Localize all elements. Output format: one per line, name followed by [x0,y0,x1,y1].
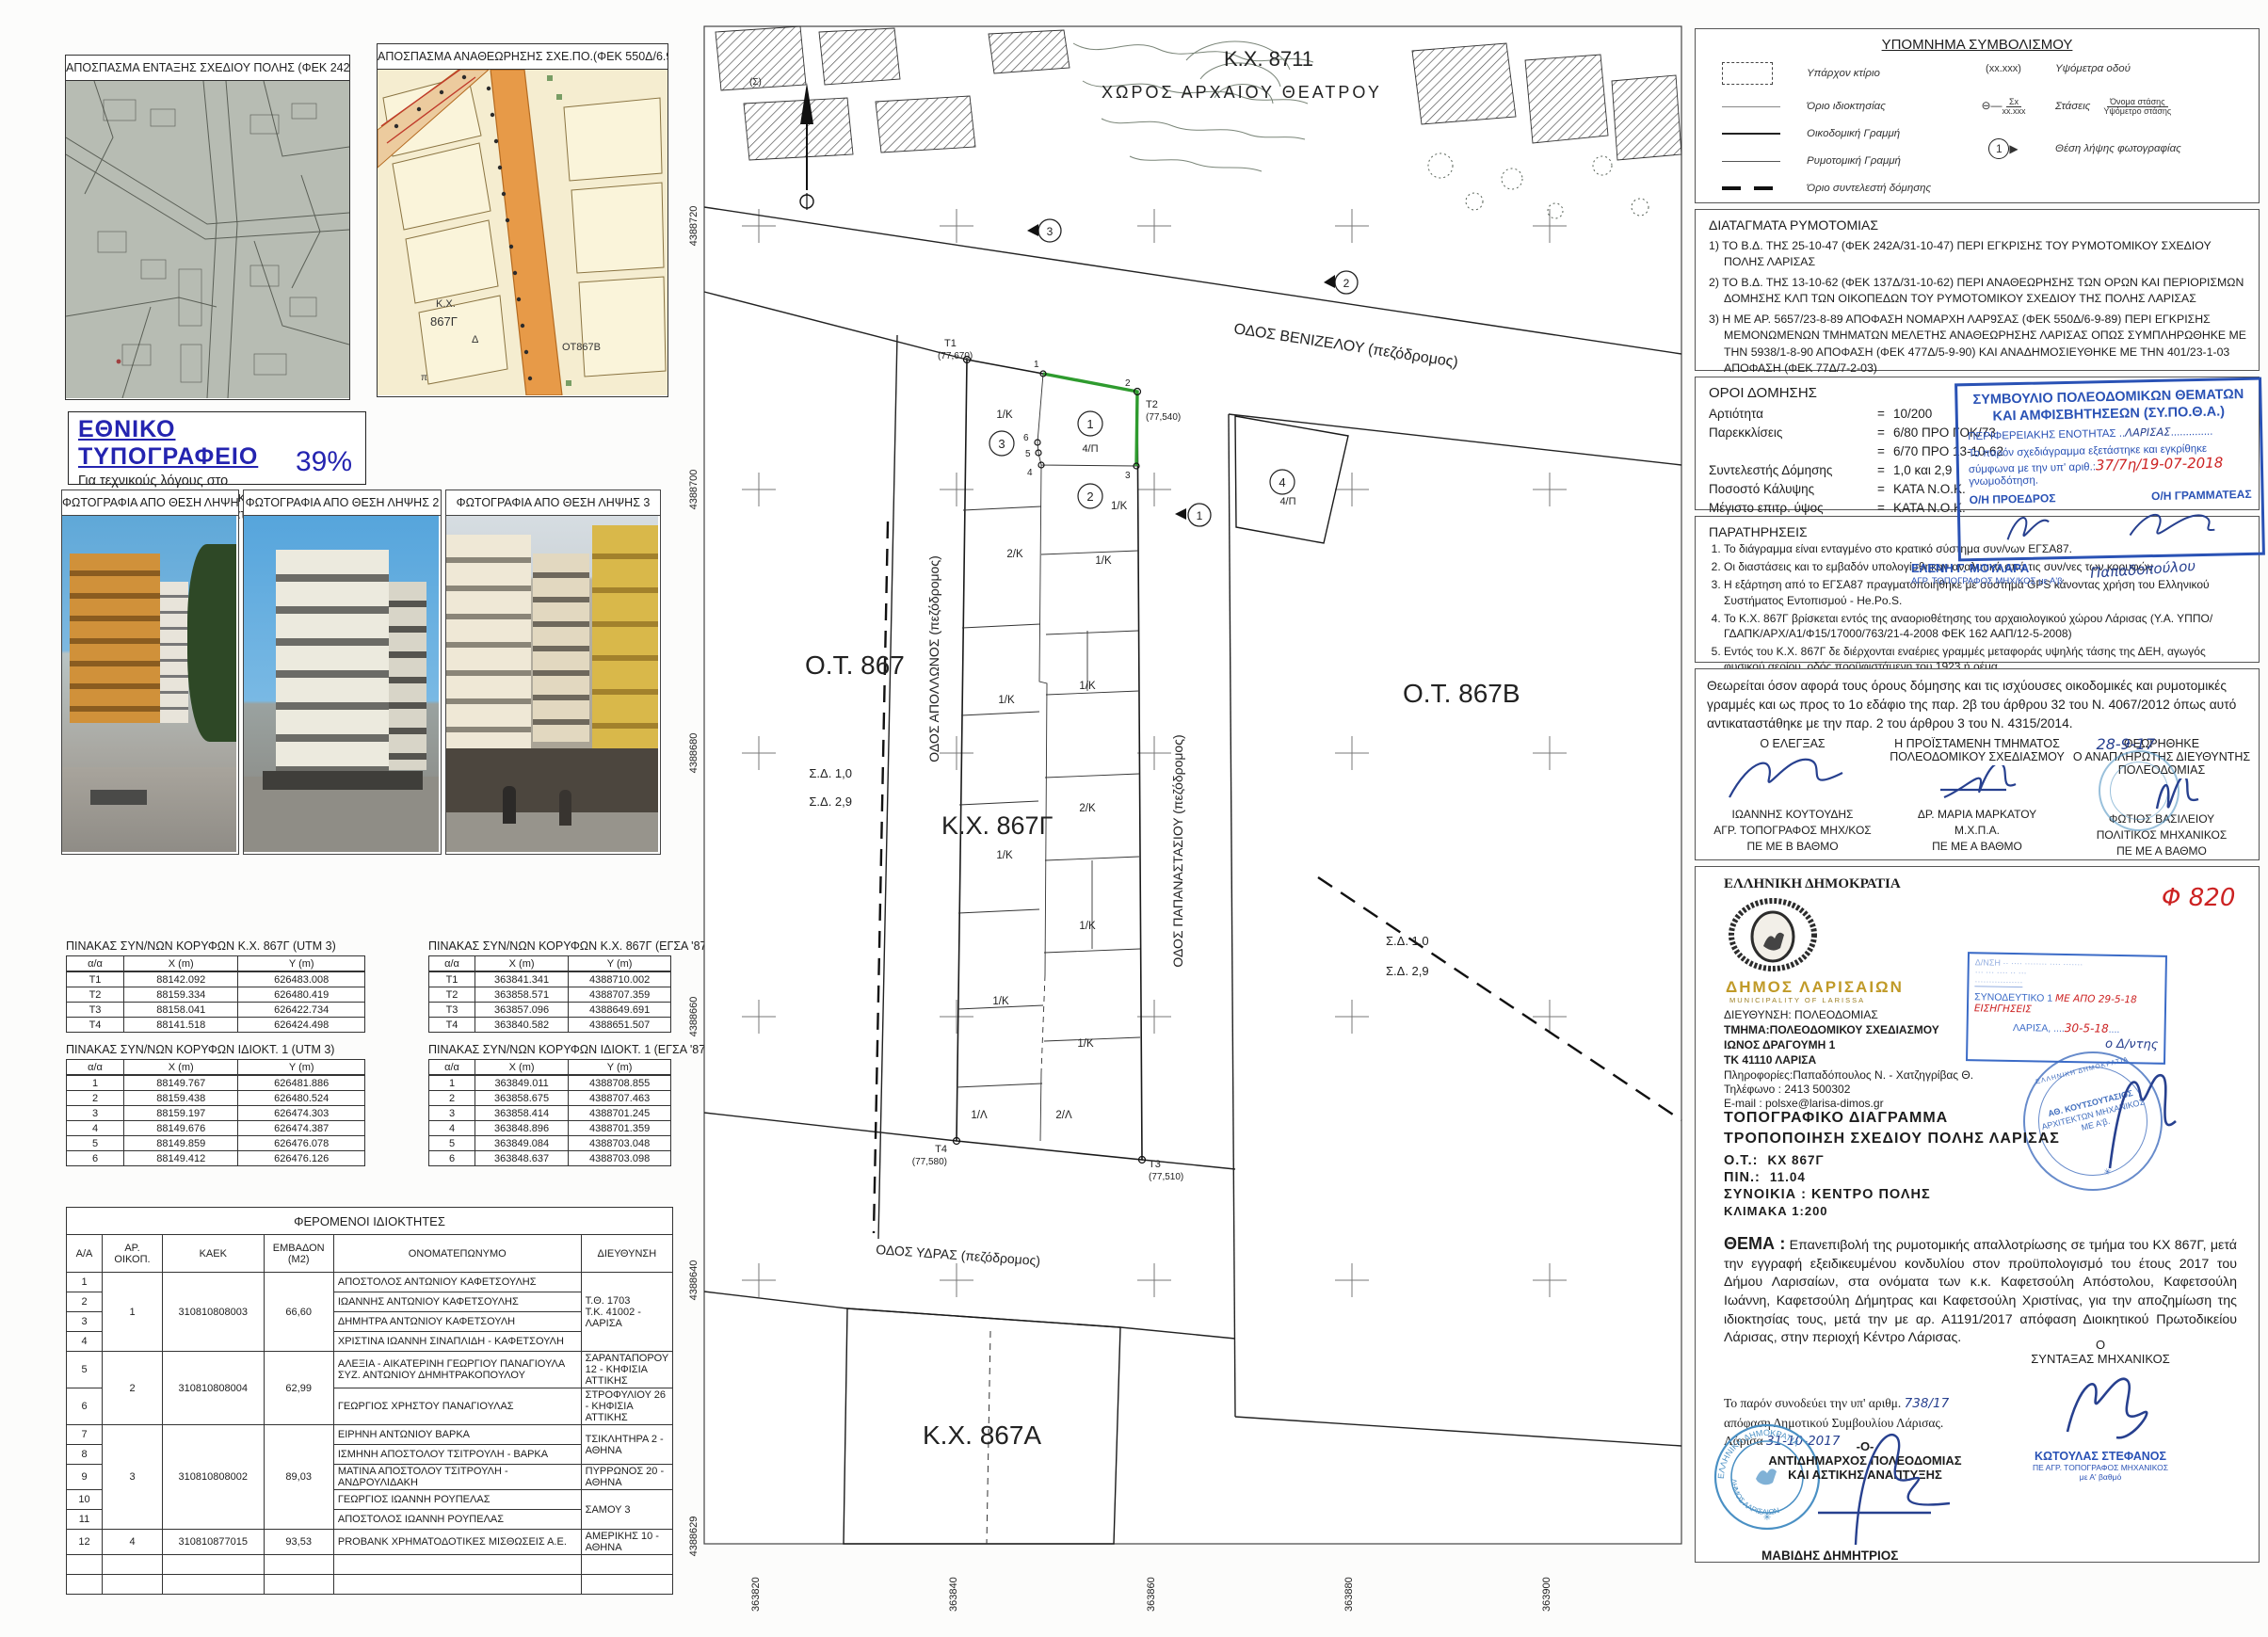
address-line-1: ΙΩΝΟΣ ΔΡΑΓΟΥΜΗ 1 [1724,1038,1835,1053]
certification-paragraph: Θεωρείται όσον αφορά τους όρους δόμησης … [1707,677,2247,733]
topographic-sheet: ΑΠΟΣΠΑΣΜΑ ΕΝΤΑΞΗΣ ΣΧΕΔΙΟΥ ΠΟΛΗΣ (ΦΕΚ 242… [0,0,2268,1637]
drafting-engineer: Ο ΣΥΝΤΑΞΑΣ ΜΗΧΑΝΙΚΟΣ ΚΩΤΟΥΛΑΣ ΣΤΕΦΑΝΟΣ Π… [2006,1338,2195,1482]
decrees-box: ΔΙΑΤΑΓΜΑΤΑ ΡΥΜΟΤΟΜΙΑΣ 1) ΤΟ Β.Δ. ΤΗΣ 25-… [1695,209,2260,371]
table-cell: 363857.096 [475,1003,569,1018]
table-cell: 4388703.048 [569,1136,671,1151]
table-cell: 4388707.463 [569,1091,671,1106]
col-header: ΟΝΟΜΑΤΕΠΩΝΥΜΟ [333,1235,581,1273]
decrees-title: ΔΙΑΤΑΓΜΑΤΑ ΡΥΜΟΤΟΜΙΑΣ [1709,217,2259,233]
photo-2-image [244,516,439,852]
table-cell: Τ4 [429,1018,475,1033]
col-header: ΚΑΕΚ [163,1235,265,1273]
table-cell: 1 [67,1075,124,1091]
svg-text:Κ.Χ.: Κ.Χ. [436,298,456,310]
extract-revision-title: ΑΠΟΣΠΑΣΜΑ ΑΝΑΘΕΩΡΗΣΗΣ ΣΧΕ.ΠΟ.(ΦΕΚ 550Δ/6… [378,44,668,70]
cadastral-map: 4388720 4388700 4388680 4388660 4388640 … [659,23,1695,1623]
accompanying-stamp: Δ/ΝΣΗ ·· ···· ········ ···· ·········· ·… [1966,952,2167,1065]
table-row: Τ288159.334626480.419 [67,987,365,1003]
signer-head-of-dept: Η ΠΡΟΪΣΤΑΜΕΝΗ ΤΜΗΜΑΤΟΣΠΟΛΕΟΔΟΜΙΚΟΥ ΣΧΕΔΙ… [1888,737,2067,858]
table-cell: 2 [429,1091,475,1106]
svg-text:1: 1 [1086,417,1093,431]
photo-3-title: ΦΩΤΟΓΡΑΦΙΑ ΑΠΟ ΘΕΣΗ ΛΗΨΗΣ 3 [446,490,660,516]
axis-y-label: 4388629 [688,1517,700,1557]
address-line-2: ΤΚ 41110 ΛΑΡΙΣΑ [1724,1053,1816,1068]
coord-table-kx-egsa: ΠΙΝΑΚΑΣ ΣΥΝ/ΝΩΝ ΚΟΡΥΦΩΝ Κ.Χ. 867Γ (ΕΓΣΑ … [428,939,671,1033]
axis-x-label: 363820 [750,1577,762,1612]
building-line-icon [1722,133,1790,135]
table-cell: 363840.582 [475,1018,569,1033]
photo-3-image [446,516,658,852]
directorate-line: ΔΙΕΥΘΥΝΣΗ: ΠΟΛΕΟΔΟΜΙΑΣ [1724,1008,1878,1023]
state-header: ΕΛΛΗΝΙΚΗ ΔΗΜΟΚΡΑΤΙΑ [1724,876,1901,892]
svg-text:867Γ: 867Γ [430,314,458,329]
certification-box: Θεωρείται όσον αφορά τους όρους δόμησης … [1695,668,2260,860]
table-cell: Τ3 [429,1003,475,1018]
table-cell: 3 [67,1106,124,1121]
reduction-percent: 39% [296,446,352,478]
point-elev: (77,670) [938,351,973,361]
axis-y-label: 4388700 [688,470,700,510]
phone-line: Τηλέφωνο : 2413 500302 [1724,1083,1850,1098]
svg-text:1/Κ: 1/Κ [992,996,1009,1007]
photo-1: ΦΩΤΟΓΡΑΦΙΑ ΑΠΟ ΘΕΣΗ ΛΗΨΗΣ 1 [61,489,239,855]
svg-text:1/Λ: 1/Λ [971,1110,988,1121]
svg-text:1/Κ: 1/Κ [998,695,1015,706]
title-line-1: ΤΟΠΟΓΡΑΦΙΚΟ ΔΙΑΓΡΑΜΜΑ [1724,1110,1948,1127]
table-cell: Τ1 [67,971,124,987]
axis-x-label: 363900 [1541,1577,1552,1612]
table-cell: 2 [67,1091,124,1106]
table-cell: 88149.412 [124,1151,238,1166]
svg-text:1/Κ: 1/Κ [1095,555,1112,567]
signature-deputy-mayor [1799,1422,1969,1554]
axis-y-label: 4388660 [688,997,700,1037]
col-header: Y (m) [238,956,365,972]
table-cell: 363858.675 [475,1091,569,1106]
col-header: X (m) [475,956,569,972]
signer-director: ΘΕΩΡΗΘΗΚΕΟ ΑΝΑΠΛΗΡΩΤΗΣ ΔΙΕΥΘΥΝΤΗΣΠΟΛΕΟΔΟ… [2072,737,2251,858]
legend-title: ΥΠΟΜΝΗΜΑ ΣΥΜΒΟΛΙΣΜΟΥ [1696,37,2259,53]
table-row: 5363849.0844388703.048 [429,1136,671,1151]
owners-table-title: ΦΕΡΟΜΕΝΟΙ ΙΔΙΟΚΤΗΤΕΣ [67,1208,673,1235]
sypotha-signatures [1970,501,2244,548]
table-cell: 3 [429,1106,475,1121]
svg-text:ΟΤ867Β: ΟΤ867Β [562,342,601,353]
decree-item: 1) ΤΟ Β.Δ. ΤΗΣ 25-10-47 (ΦΕΚ 242Α/31-10-… [1709,238,2249,271]
signature-engineer [2030,1366,2171,1447]
axis-y-label: 4388720 [688,206,700,247]
table-row: Τ2363858.5714388707.359 [429,987,671,1003]
coord-table-kx-utm-title: ΠΙΝΑΚΑΣ ΣΥΝ/ΝΩΝ ΚΟΡΥΦΩΝ Κ.Χ. 867Γ (UTM 3… [66,939,365,953]
signature-director [2091,778,2232,810]
table-row: 2363858.6754388707.463 [429,1091,671,1106]
photo-2: ΦΩΤΟΓΡΑΦΙΑ ΑΠΟ ΘΕΣΗ ΛΗΨΗΣ 2 [243,489,442,855]
table-row: 188149.767626481.886 [67,1075,365,1091]
col-header: Y (m) [569,1060,671,1076]
svg-text:1/Κ: 1/Κ [1079,681,1096,692]
table-cell: 4388649.691 [569,1003,671,1018]
table-cell: 4388651.507 [569,1018,671,1033]
table-cell: 363841.341 [475,971,569,987]
street-line-icon [1722,161,1790,162]
scale-line: ΚΛΙΜΑΚΑ 1:200 [1724,1205,1828,1219]
remark-item: Το Κ.Χ. 867Γ βρίσκεται εντός της αναοριο… [1724,611,2249,641]
photo-1-image [62,516,236,852]
svg-text:1/Κ: 1/Κ [996,409,1013,421]
axis-x-label: 363840 [948,1577,959,1612]
col-header: α/α [67,1060,124,1076]
table-row: 4363848.8964388701.359 [429,1121,671,1136]
decree-item: 2) ΤΟ Β.Δ. ΤΗΣ 13-10-62 (ΦΕΚ 137Δ/31-10-… [1709,275,2249,308]
col-header: X (m) [124,956,238,972]
col-header: α/α [67,956,124,972]
info-line: Πληροφορίες:Παπαδόπουλος Ν. - Χατζηγρίβα… [1724,1068,1973,1083]
extract-1947-map-art [66,81,349,398]
col-header: X (m) [475,1060,569,1076]
table-row: Τ488141.518626424.498 [67,1018,365,1033]
table-row: 1363849.0114388708.855 [429,1075,671,1091]
table-cell: 363849.011 [475,1075,569,1091]
vertex-number: 3 [1125,471,1131,481]
table-cell: 4388708.855 [569,1075,671,1091]
coord-table-kx-utm: ΠΙΝΑΚΑΣ ΣΥΝ/ΝΩΝ ΚΟΡΥΦΩΝ Κ.Χ. 867Γ (UTM 3… [66,939,365,1033]
table-cell: 4388710.002 [569,971,671,987]
svg-text:✳: ✳ [1763,1513,1771,1523]
extract-map-1947: ΑΠΟΣΠΑΣΜΑ ΕΝΤΑΞΗΣ ΣΧΕΔΙΟΥ ΠΟΛΗΣ (ΦΕΚ 242… [65,55,350,400]
table-row-empty [67,1575,673,1595]
table-cell: 363848.637 [475,1151,569,1166]
table-row: Τ4363840.5824388651.507 [429,1018,671,1033]
table-cell: 88142.092 [124,971,238,987]
sd-label: Σ.Δ. 2,9 [1386,964,1429,978]
sypotha-name-1: ΕΛΕΝΗ Γ. ΜΟΥΛΑΡΑ [1911,561,2029,575]
right-column: ΥΠΟΜΝΗΜΑ ΣΥΜΒΟΛΙΣΜΟΥ Υπάρχον κτίριο Όριο… [1695,28,2261,1591]
table-cell: 5 [67,1136,124,1151]
legend-item: 1▶ Θέση λήψης φωτογραφίας [1969,138,2251,159]
vertex-number: 4 [1027,468,1033,478]
svg-text:3: 3 [1047,225,1054,238]
photo-1-title: ΦΩΤΟΓΡΑΦΙΑ ΑΠΟ ΘΕΣΗ ΛΗΨΗΣ 1 [62,490,238,516]
sypotha-name-1-title: ΑΓΡ. ΤΟΠΟΓΡΑΦΟΣ ΜΗΧ/ΚΟΣ με Α'β [1911,576,2063,586]
signature-head [1906,765,2048,803]
table-row: 12 4 310810877015 93,53 PROBANK ΧΡΗΜΑΤΟΔ… [67,1530,673,1555]
svg-text:(Σ): (Σ) [749,77,762,88]
table-row: Τ388158.041626422.734 [67,1003,365,1018]
point-label: T4 [935,1144,947,1155]
table-cell: 88159.438 [124,1091,238,1106]
table-cell: 626483.008 [238,971,365,987]
map-label-ot867b: Ο.Τ. 867Β [1403,679,1520,708]
table-cell: 363849.084 [475,1136,569,1151]
department-line: ΤΜΗΜΑ:ΠΟΛΕΟΔΟΜΙΚΟΥ ΣΧΕΔΙΑΣΜΟΥ [1724,1023,1939,1038]
property-boundary-icon [1722,106,1790,107]
map-label-kx867g: Κ.Χ. 867Γ [941,811,1054,840]
table-cell: 88159.197 [124,1106,238,1121]
table-row: Τ188142.092626483.008 [67,971,365,987]
table-cell: Τ4 [67,1018,124,1033]
svg-text:1/Κ: 1/Κ [1077,1038,1094,1050]
col-header: Y (m) [569,956,671,972]
table-cell: 4388701.245 [569,1106,671,1121]
table-cell: 88149.676 [124,1121,238,1136]
signer-checker: Ο ΕΛΕΓΞΑΣ ΙΩΑΝΝΗΣ ΚΟΥΤΟΥΔΗΣ ΑΓΡ. ΤΟΠΟΓΡΑ… [1703,737,1882,858]
table-row: 688149.412626476.126 [67,1151,365,1166]
coord-table-idio-egsa: ΠΙΝΑΚΑΣ ΣΥΝ/ΝΩΝ ΚΟΡΥΦΩΝ ΙΔΙΟΚΤ. 1 (ΕΓΣΑ … [428,1043,671,1166]
col-header: α/α [429,956,475,972]
table-row: 388159.197626474.303 [67,1106,365,1121]
extract-revision-map-art: Κ.Χ. 867Γ Δ ΟΤ867Β π [378,70,668,395]
table-cell: 626474.303 [238,1106,365,1121]
point-label: T1 [944,338,957,349]
legend-item: ⊖—Σxxx.xxx Στάσεις Όνομα στάσηςΥψόμετρο … [1969,97,2251,116]
printing-note: ΕΘΝΙΚΟ ΤΥΠΟΓΡΑΦΕΙΟ Για τεχνικούς λόγους … [68,411,366,485]
file-number: Φ 820 [2162,884,2235,912]
svg-text:1/Κ: 1/Κ [996,850,1013,861]
table-row: 3363858.4144388701.245 [429,1106,671,1121]
district-line: ΣΥΝΟΙΚΙΑ : ΚΕΝΤΡΟ ΠΟΛΗΣ [1724,1187,1931,1203]
vertex-number: 5 [1025,449,1031,459]
svg-text:3: 3 [998,437,1005,451]
table-cell: Τ2 [429,987,475,1003]
point-elev: (77,510) [1149,1172,1183,1182]
svg-text:2/Κ: 2/Κ [1006,549,1023,560]
table-row: 488149.676626474.387 [67,1121,365,1136]
map-label-kx867a: Κ.Χ. 867Α [923,1420,1041,1450]
svg-text:ΔΗΜΟΣ ΛΑΡΙΣΑΙΩΝ: ΔΗΜΟΣ ΛΑΡΙΣΑΙΩΝ [1729,1478,1780,1517]
axis-x-label: 363860 [1146,1577,1157,1612]
station-icon: ⊖—Σxxx.xxx [1969,97,2038,116]
legend-box: ΥΠΟΜΝΗΜΑ ΣΥΜΒΟΛΙΣΜΟΥ Υπάρχον κτίριο Όριο… [1695,28,2260,203]
table-cell: Τ1 [429,971,475,987]
photo-position-icon: 1▶ [1969,138,2038,159]
table-cell: 626422.734 [238,1003,365,1018]
table-cell: 88159.334 [124,987,238,1003]
table-row: Τ3363857.0964388649.691 [429,1003,671,1018]
col-header: ΑΡ. ΟΙΚΟΠ. [103,1235,163,1273]
street-papanastasiou: ΟΔΟΣ ΠΑΠΑΝΑΣΤΑΣΙΟΥ (πεζόδρομος) [1170,734,1185,967]
table-cell: 363858.414 [475,1106,569,1121]
point-label: T3 [1149,1159,1161,1170]
table-cell: 88141.518 [124,1018,238,1033]
table-cell: Τ3 [67,1003,124,1018]
table-cell: 88149.767 [124,1075,238,1091]
table-cell: 4 [67,1121,124,1136]
table-cell: 4388707.359 [569,987,671,1003]
table-cell: 363848.896 [475,1121,569,1136]
title-line-2: ΤΡΟΠΟΠΟΙΗΣΗ ΣΧΕΔΙΟΥ ΠΟΛΗΣ ΛΑΡΙΣΑΣ [1724,1131,2060,1148]
svg-text:2/Κ: 2/Κ [1079,803,1096,814]
svg-text:2: 2 [1086,489,1093,504]
axis-x-label: 363880 [1343,1577,1355,1612]
sd-label: Σ.Δ. 1,0 [1386,934,1429,948]
axis-y-label: 4388640 [688,1260,700,1301]
extract-1947-title: ΑΠΟΣΠΑΣΜΑ ΕΝΤΑΞΗΣ ΣΧΕΔΙΟΥ ΠΟΛΗΣ (ΦΕΚ 242… [66,56,349,81]
decree-item: 3) Η ΜΕ ΑΡ. 5657/23-8-89 ΑΠΟΦΑΣΗ ΝΟΜΑΡΧΗ… [1709,312,2249,377]
coord-table-idio-utm: ΠΙΝΑΚΑΣ ΣΥΝ/ΝΩΝ ΚΟΡΥΦΩΝ ΙΔΙΟΚΤ. 1 (UTM 3… [66,1043,365,1166]
point-label: T2 [1146,399,1158,410]
subject-paragraph: ΘΕΜΑ : Επανεπιβολή της ρυμοτομικής απαλλ… [1724,1232,2237,1348]
signature-architect [2053,1055,2185,1178]
table-row: Τ1363841.3414388710.002 [429,971,671,987]
sd-label: Σ.Δ. 1,0 [809,766,852,780]
table-row: 5 2 310810808004 62,99 ΑΛΕΞΙΑ - ΑΙΚΑΤΕΡΙ… [67,1352,673,1388]
pin-line: ΠΙΝ.: 11.04 [1724,1170,1806,1186]
svg-text:1/Κ: 1/Κ [1111,501,1128,512]
axis-y-label: 4388680 [688,733,700,774]
coord-table-idio-utm-title: ΠΙΝΑΚΑΣ ΣΥΝ/ΝΩΝ ΚΟΡΥΦΩΝ ΙΔΙΟΚΤ. 1 (UTM 3… [66,1043,365,1056]
table-cell: 626476.078 [238,1136,365,1151]
signature-checker [1722,752,1863,803]
svg-text:2: 2 [1343,277,1350,290]
svg-text:π: π [421,373,427,383]
sypotha-stamp: ΣΥΜΒΟΥΛΙΟ ΠΟΛΕΟΔΟΜΙΚΩΝ ΘΕΜΑΤΩΝΚΑΙ ΑΜΦΙΣΒ… [1954,377,2265,562]
letterhead-box: ΕΛΛΗΝΙΚΗ ΔΗΜΟΚΡΑΤΙΑ ΔΗΜΟΣ ΛΑΡΙΣΑΙΩΝ MUNI… [1695,866,2260,1563]
table-cell: 626424.498 [238,1018,365,1033]
svg-text:1/Κ: 1/Κ [1079,921,1096,932]
street-apollonos: ΟΔΟΣ ΑΠΟΛΛΩΝΟΣ (πεζόδρομος) [926,555,941,762]
sd-label: Σ.Δ. 2,9 [809,794,852,809]
existing-building-icon [1722,62,1790,85]
map-label-theater: ΧΩΡΟΣ ΑΡΧΑΙΟΥ ΘΕΑΤΡΟΥ [1102,83,1382,102]
table-cell: 363858.571 [475,987,569,1003]
table-cell: Τ2 [67,987,124,1003]
table-row: 288159.438626480.524 [67,1091,365,1106]
legend-item: Όριο συντελεστή δόμησης [1722,183,2259,194]
municipality-name: ΔΗΜΟΣ ΛΑΡΙΣΑΙΩΝ [1726,978,1904,997]
municipality-name-en: MUNICIPALITY OF LARISSA [1729,996,1865,1004]
col-header: ΕΜΒΑΔΟΝ (Μ2) [264,1235,333,1273]
vertex-number: 1 [1034,360,1039,370]
svg-text:4/Π: 4/Π [1082,443,1098,455]
svg-text:4: 4 [1279,475,1285,489]
table-row: 1 1 310810808003 66,60 ΑΠΟΣΤΟΛΟΣ ΑΝΤΩΝΙΟ… [67,1273,673,1292]
col-header: Y (m) [238,1060,365,1076]
table-row-empty [67,1555,673,1575]
table-cell: 626474.387 [238,1121,365,1136]
legend-item: (xx.xxx) Υψόμετρα οδού [1969,63,2251,74]
table-cell: 6 [67,1151,124,1166]
coord-table-idio-egsa-title: ΠΙΝΑΚΑΣ ΣΥΝ/ΝΩΝ ΚΟΡΥΦΩΝ ΙΔΙΟΚΤ. 1 (ΕΓΣΑ … [428,1043,671,1056]
svg-text:4/Π: 4/Π [1279,496,1295,507]
col-header: α/α [429,1060,475,1076]
map-label-kx8711: Κ.Χ. 8711 [1224,47,1313,71]
table-cell: 88149.859 [124,1136,238,1151]
table-cell: 626481.886 [238,1075,365,1091]
svg-text:2/Λ: 2/Λ [1055,1110,1072,1121]
vertex-number: 6 [1023,433,1029,443]
vertex-number: 2 [1125,378,1131,389]
col-header: Α/Α [67,1235,103,1273]
point-elev: (77,540) [1146,412,1181,423]
sd-boundary-icon [1722,186,1790,190]
table-row: 588149.859626476.078 [67,1136,365,1151]
extract-map-revision: ΑΠΟΣΠΑΣΜΑ ΑΝΑΘΕΩΡΗΣΗΣ ΣΧΕ.ΠΟ.(ΦΕΚ 550Δ/6… [377,43,668,397]
photo-2-title: ΦΩΤΟΓΡΑΦΙΑ ΑΠΟ ΘΕΣΗ ΛΗΨΗΣ 2 [244,490,441,516]
svg-text:Δ: Δ [472,334,479,345]
table-cell: 88158.041 [124,1003,238,1018]
col-header: X (m) [124,1060,238,1076]
table-cell: 626480.524 [238,1091,365,1106]
table-cell: 1 [429,1075,475,1091]
table-cell: 4388701.359 [569,1121,671,1136]
photo-3: ΦΩΤΟΓΡΑΦΙΑ ΑΠΟ ΘΕΣΗ ΛΗΨΗΣ 3 [445,489,661,855]
table-cell: 626476.126 [238,1151,365,1166]
municipality-logo [1728,897,1818,974]
table-row: 7 3 310810808002 89,03 ΕΙΡΗΝΗ ΑΝΤΩΝΙΟΥ Β… [67,1425,673,1445]
deputy-mayor-name: ΜΑΒΙΔΗΣ ΔΗΜΗΤΡΙΟΣ [1761,1549,1898,1563]
table-cell: 4 [429,1121,475,1136]
table-row: 6363848.6374388703.098 [429,1151,671,1166]
table-cell: 6 [429,1151,475,1166]
ot-line: Ο.Τ.: ΚΧ 867Γ [1724,1153,1825,1169]
coord-table-kx-egsa-title: ΠΙΝΑΚΑΣ ΣΥΝ/ΝΩΝ ΚΟΡΥΦΩΝ Κ.Χ. 867Γ (ΕΓΣΑ … [428,939,671,953]
table-cell: 5 [429,1136,475,1151]
table-cell: 4388703.098 [569,1151,671,1166]
point-elev: (77,580) [912,1157,947,1167]
svg-text:1: 1 [1197,509,1203,522]
map-label-ot867: Ο.Τ. 867 [805,650,905,680]
table-cell: 626480.419 [238,987,365,1003]
owners-table: ΦΕΡΟΜΕΝΟΙ ΙΔΙΟΚΤΗΤΕΣ Α/Α ΑΡ. ΟΙΚΟΠ. ΚΑΕΚ… [66,1207,673,1595]
